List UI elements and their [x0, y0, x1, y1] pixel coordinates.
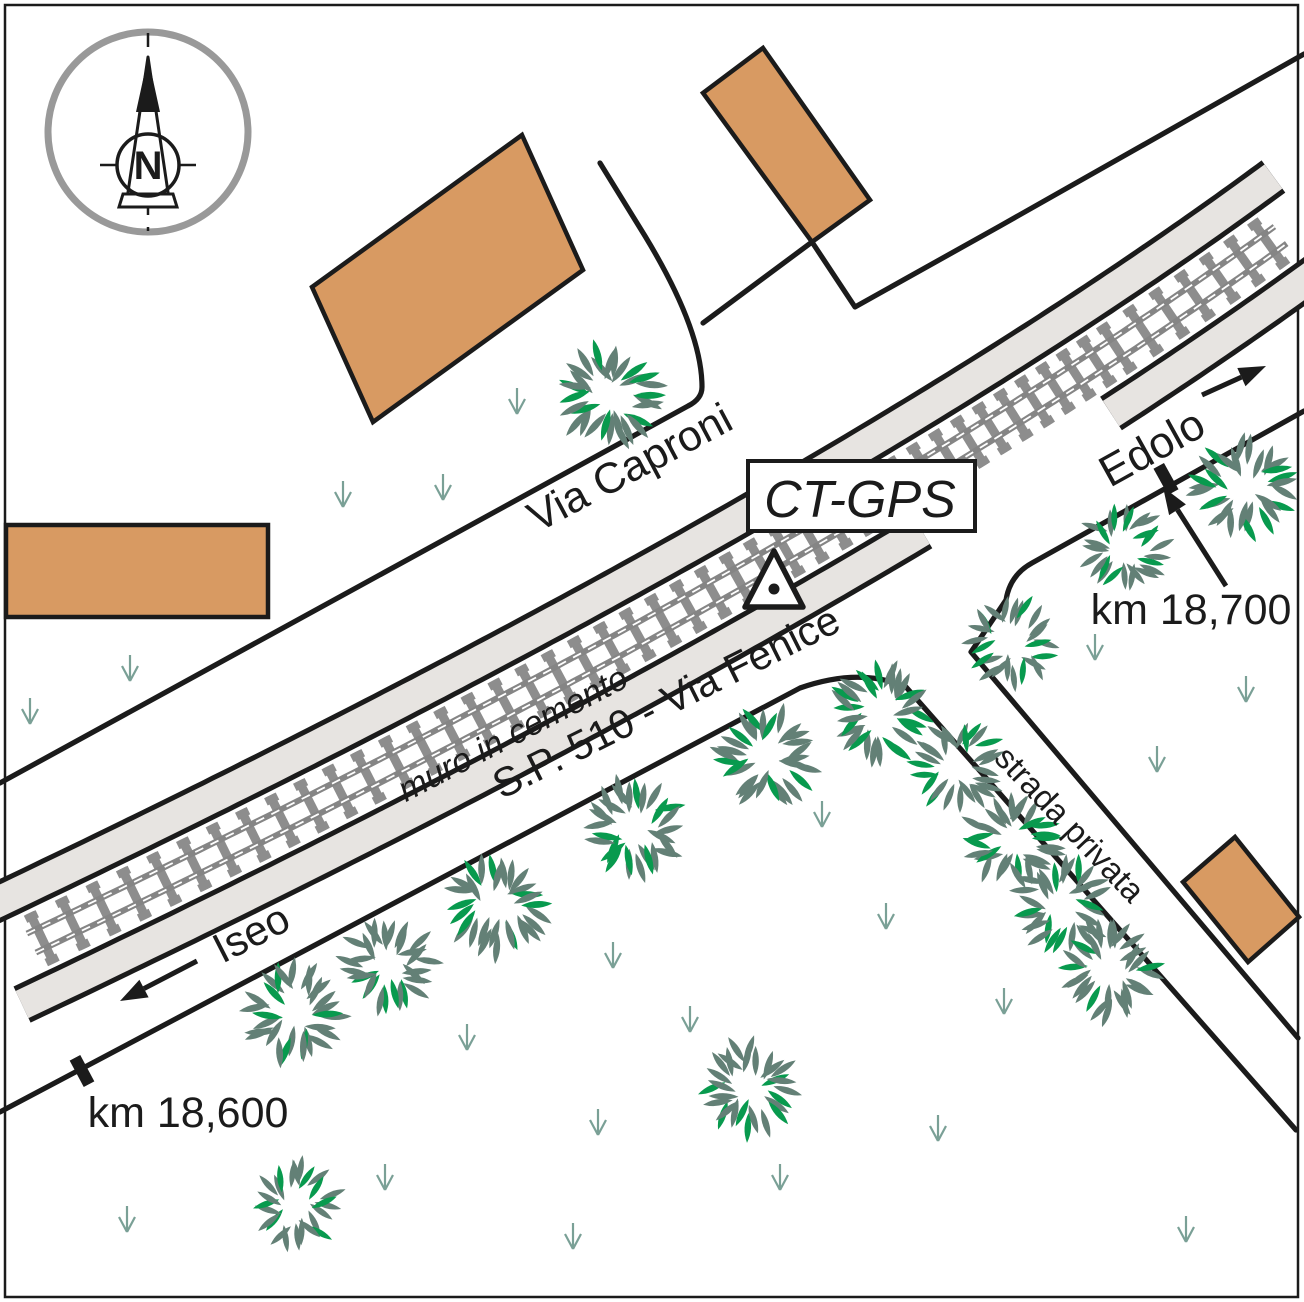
- grass-symbol: [605, 942, 621, 968]
- grass-symbol: [878, 903, 894, 929]
- tree-symbol: [334, 918, 444, 1017]
- parcel-line-east: [812, 54, 1304, 307]
- grass-symbol: [930, 1115, 946, 1141]
- grass-symbol: [1178, 1216, 1194, 1242]
- building-left: [6, 525, 268, 617]
- grass-symbol: [565, 1223, 581, 1249]
- building-large: [312, 135, 583, 422]
- compass-rose: [48, 32, 248, 240]
- grass-symbol: [335, 481, 351, 507]
- grass-symbol: [509, 388, 525, 414]
- direction-label-edolo: Edolo: [1091, 399, 1213, 496]
- parcel-line-west: [703, 242, 812, 323]
- grass-symbol: [119, 1206, 135, 1232]
- building-right: [1183, 837, 1299, 962]
- edolo-direction-arrow: [1237, 366, 1266, 386]
- tree-symbol: [583, 773, 686, 884]
- km-marker-label-18700: km 18,700: [1091, 586, 1292, 634]
- grass-symbol: [682, 1006, 698, 1032]
- grass-symbol: [377, 1164, 393, 1190]
- grass-symbol: [590, 1109, 606, 1135]
- tree-symbol: [1078, 504, 1175, 592]
- grass-symbol: [1087, 634, 1103, 660]
- grass-symbol: [814, 801, 830, 827]
- map-stage: Via Caproni S.P. 510 - Via Fenice muro i…: [0, 0, 1304, 1302]
- grass-symbol: [459, 1024, 475, 1050]
- tree-symbol: [960, 594, 1060, 692]
- grass-symbol: [1238, 676, 1254, 702]
- grass-symbol: [22, 698, 38, 724]
- km-marker-label-18600: km 18,600: [88, 1089, 289, 1137]
- site-map: Via Caproni S.P. 510 - Via Fenice muro i…: [0, 0, 1304, 1302]
- station-label-ct-gps: CT-GPS: [764, 471, 956, 529]
- iseo-direction-arrow: [120, 980, 149, 1001]
- survey-point-dot: [769, 584, 780, 595]
- tree-symbol: [238, 956, 352, 1068]
- tree-symbol: [708, 702, 823, 807]
- grass-symbol: [435, 474, 451, 500]
- road-label-strada-privata: strada privata: [988, 739, 1153, 910]
- grass-symbol: [1149, 746, 1165, 772]
- grass-symbol: [772, 1164, 788, 1190]
- compass-north-letter: N: [134, 144, 163, 188]
- tree-symbol: [829, 659, 935, 768]
- building-tall: [703, 48, 870, 242]
- tree-symbol: [252, 1155, 346, 1253]
- tree-symbol: [697, 1034, 803, 1143]
- grass-symbol: [996, 988, 1012, 1014]
- grass-symbol: [122, 655, 138, 681]
